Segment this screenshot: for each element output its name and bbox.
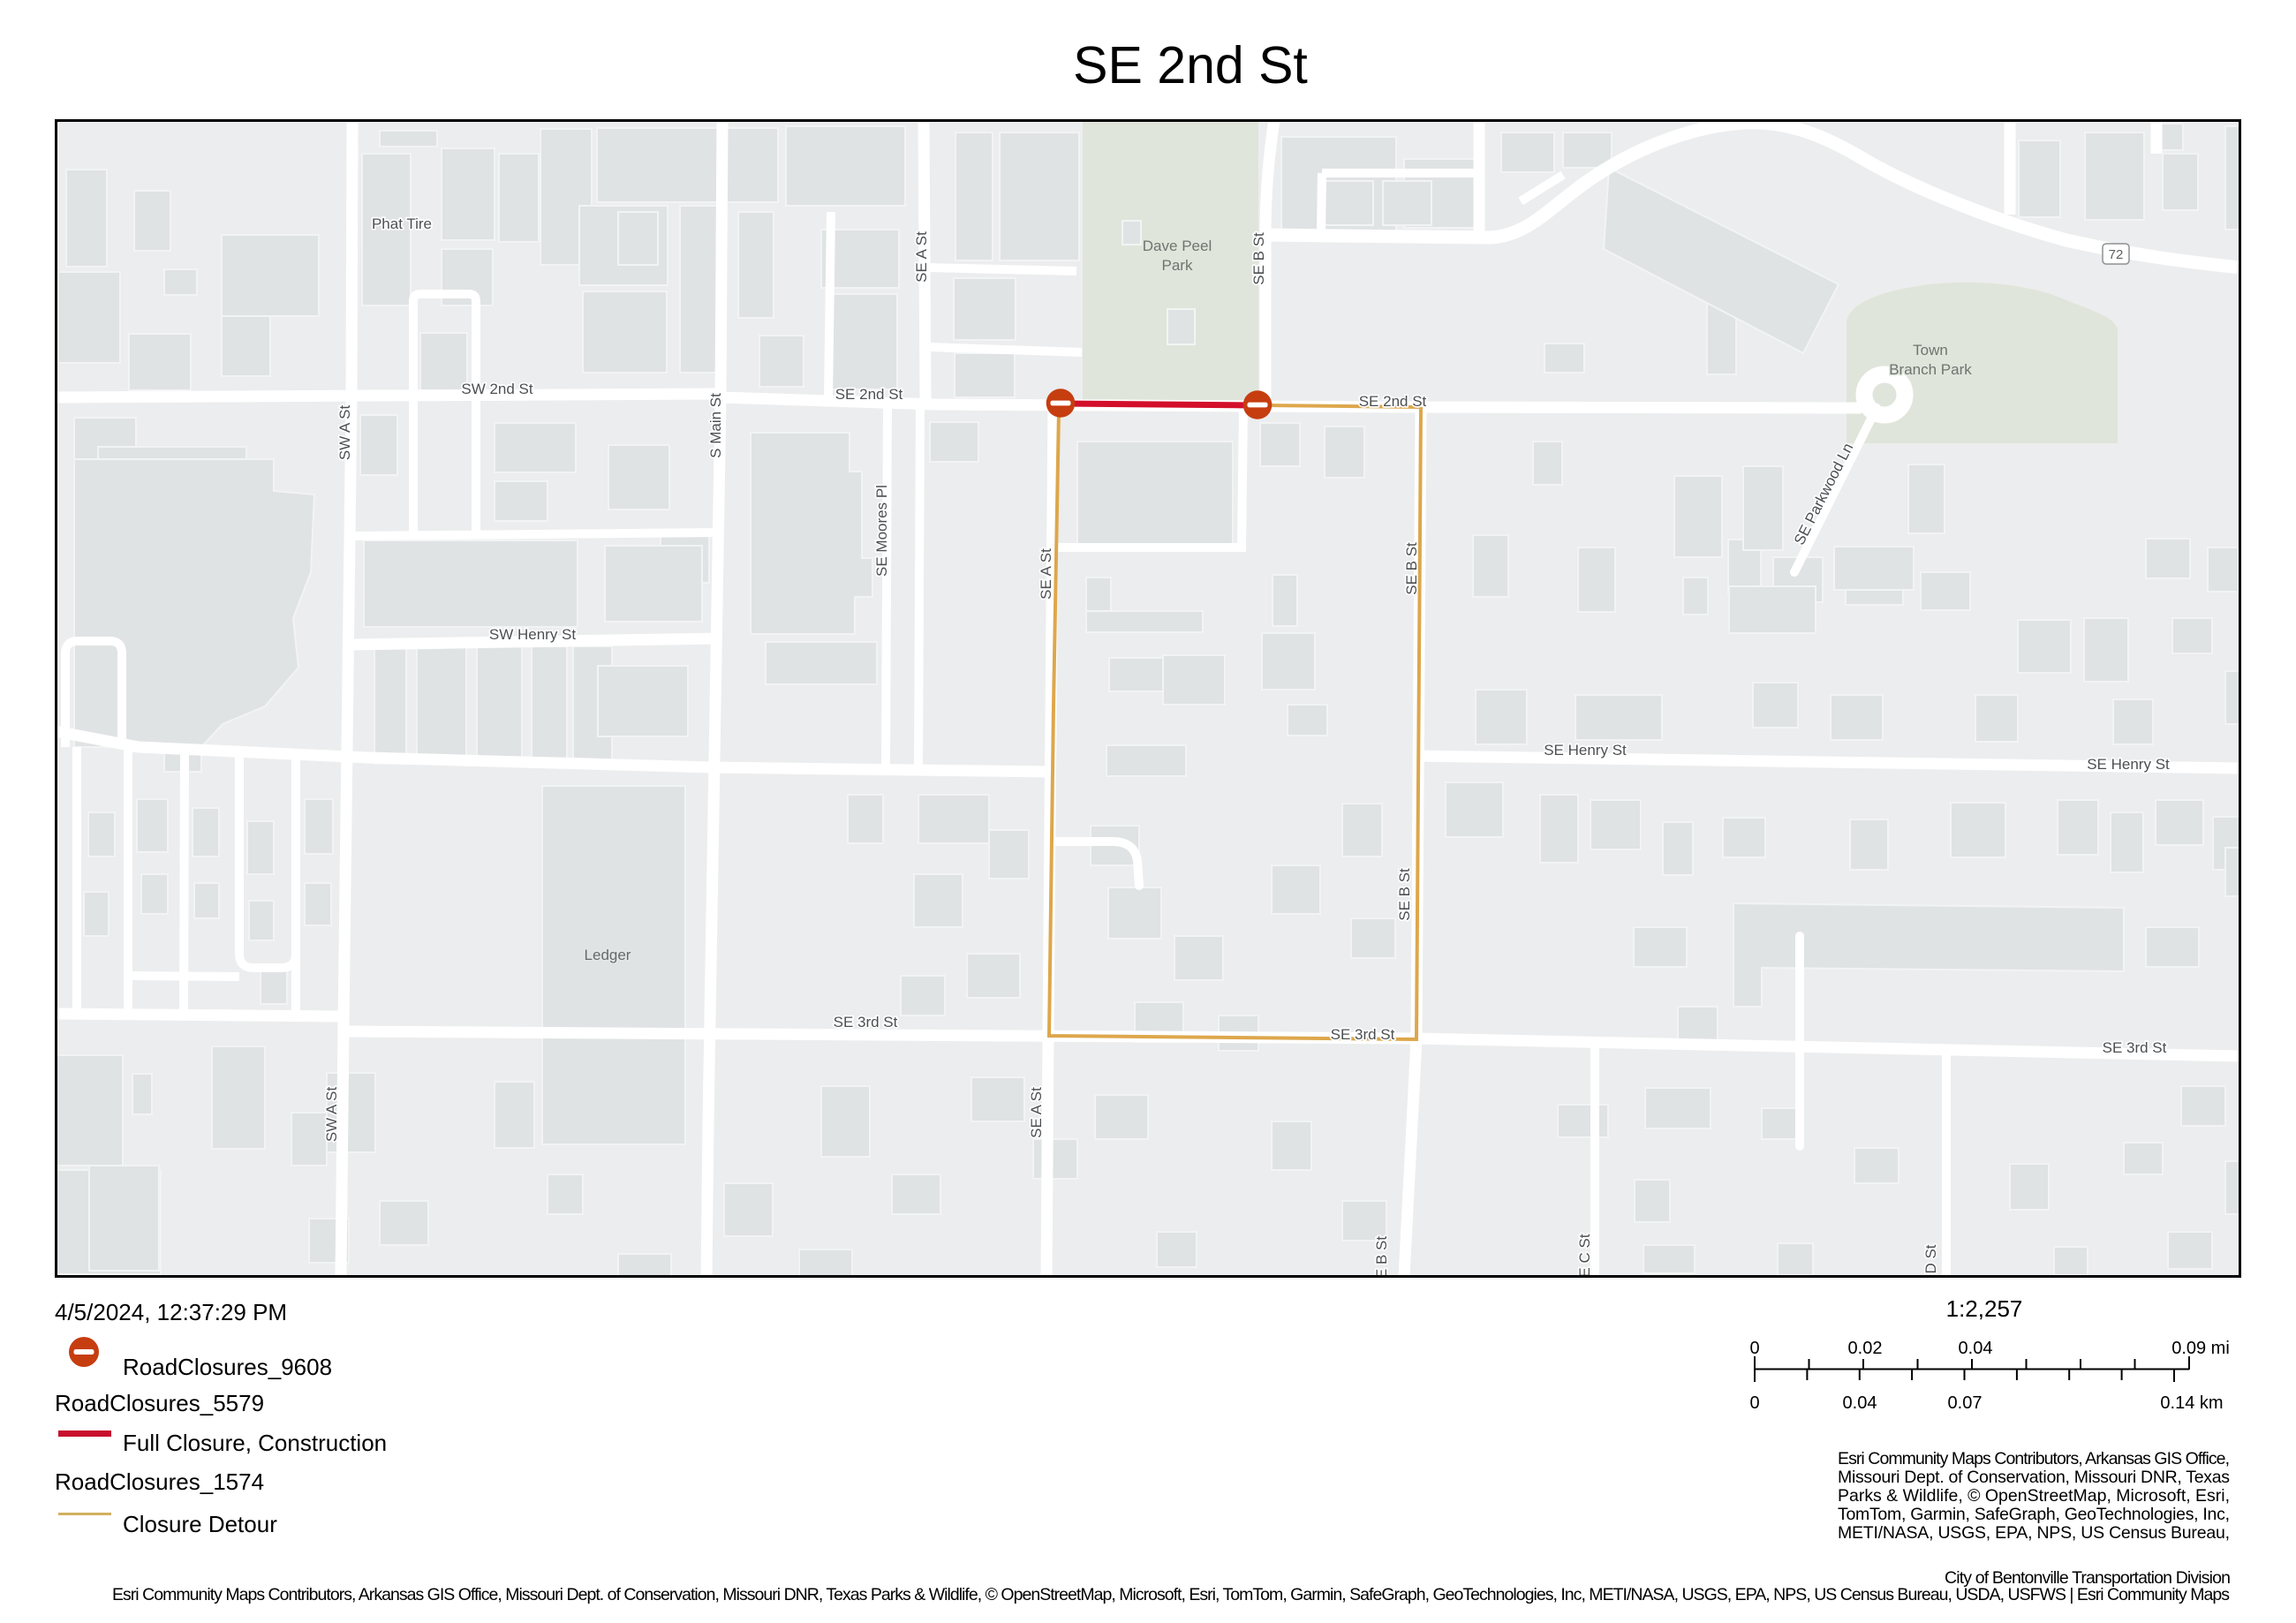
svg-text:SE B St: SE B St — [1250, 232, 1267, 285]
svg-text:SE A St: SE A St — [1038, 548, 1054, 600]
svg-text:Park: Park — [1162, 257, 1193, 274]
svg-text:SE 3rd St: SE 3rd St — [1331, 1026, 1395, 1043]
svg-text:SE B St: SE B St — [1403, 542, 1420, 595]
svg-text:SW A St: SW A St — [336, 405, 353, 461]
svg-text:SE 2nd St: SE 2nd St — [1359, 393, 1427, 410]
svg-text:Town: Town — [1913, 342, 1948, 359]
svg-text:SE A St: SE A St — [913, 231, 930, 283]
svg-text:0.09 mi: 0.09 mi — [2171, 1339, 2230, 1358]
svg-text:Full Closure, Construction: Full Closure, Construction — [123, 1430, 387, 1456]
svg-text:METI/NASA, USGS, EPA, NPS, US: METI/NASA, USGS, EPA, NPS, US Census Bur… — [1838, 1523, 2230, 1543]
svg-text:SE 3rd St: SE 3rd St — [2103, 1039, 2167, 1056]
svg-text:0.04: 0.04 — [1959, 1339, 1993, 1358]
svg-text:SE Moores Pl: SE Moores Pl — [873, 485, 890, 577]
svg-text:0: 0 — [1749, 1393, 1759, 1413]
svg-text:Branch Park: Branch Park — [1889, 361, 1972, 378]
svg-text:D St: D St — [1922, 1244, 1939, 1273]
svg-text:S Main St: S Main St — [707, 393, 724, 458]
svg-text:RoadClosures_9608: RoadClosures_9608 — [123, 1354, 332, 1380]
svg-text:0: 0 — [1749, 1339, 1759, 1358]
svg-text:Missouri Dept. of Conservation: Missouri Dept. of Conservation, Missouri… — [1838, 1468, 2230, 1487]
svg-text:SE B St: SE B St — [1396, 868, 1413, 921]
svg-text:72: 72 — [2109, 247, 2124, 262]
svg-text:SW 2nd St: SW 2nd St — [461, 381, 533, 397]
svg-text:RoadClosures_5579: RoadClosures_5579 — [55, 1390, 264, 1416]
svg-text:4/5/2024, 12:37:29 PM: 4/5/2024, 12:37:29 PM — [55, 1299, 287, 1325]
svg-text:Esri Community Maps Contributo: Esri Community Maps Contributors, Arkans… — [1838, 1449, 2230, 1468]
svg-text:SE Henry St: SE Henry St — [2087, 756, 2170, 773]
svg-text:SW Henry St: SW Henry St — [489, 626, 577, 643]
svg-text:SE 3rd St: SE 3rd St — [834, 1014, 898, 1030]
svg-text:TomTom, Garmin, SafeGraph, Geo: TomTom, Garmin, SafeGraph, GeoTechnologi… — [1838, 1505, 2230, 1524]
svg-text:SE Henry St: SE Henry St — [1544, 742, 1627, 759]
svg-text:0.02: 0.02 — [1848, 1339, 1883, 1358]
svg-text:Esri Community Maps Contributo: Esri Community Maps Contributors, Arkans… — [112, 1585, 2230, 1604]
svg-text:Ledger: Ledger — [585, 947, 631, 963]
svg-text:Dave Peel: Dave Peel — [1143, 238, 1212, 254]
svg-text:Parks & Wildlife, © OpenStreet: Parks & Wildlife, © OpenStreetMap, Micro… — [1838, 1486, 2230, 1506]
svg-text:E C St: E C St — [1576, 1234, 1593, 1277]
svg-text:SE 2nd St: SE 2nd St — [1073, 36, 1308, 94]
svg-text:RoadClosures_1574: RoadClosures_1574 — [55, 1468, 264, 1495]
svg-text:E B St: E B St — [1373, 1236, 1390, 1279]
svg-text:SE A St: SE A St — [1028, 1087, 1045, 1138]
svg-text:0.04: 0.04 — [1843, 1393, 1877, 1413]
svg-text:SW A St: SW A St — [323, 1087, 340, 1143]
svg-text:SE 2nd St: SE 2nd St — [835, 386, 903, 403]
svg-text:1:2,257: 1:2,257 — [1946, 1295, 2023, 1322]
svg-text:0.07: 0.07 — [1948, 1393, 1983, 1413]
svg-text:Phat Tire: Phat Tire — [372, 215, 432, 232]
svg-text:0.14 km: 0.14 km — [2160, 1393, 2223, 1413]
svg-text:Closure Detour: Closure Detour — [123, 1511, 277, 1537]
